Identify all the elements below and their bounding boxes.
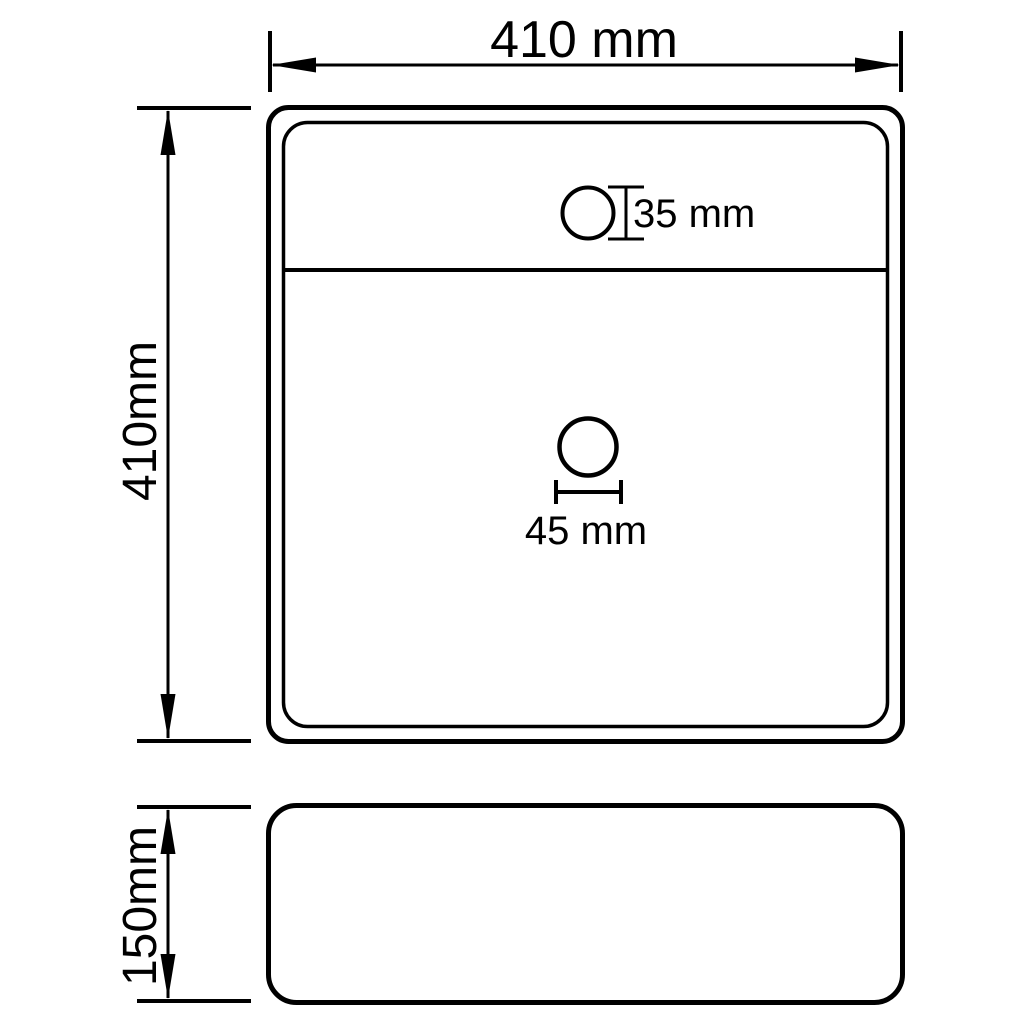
faucet-hole-circle bbox=[563, 188, 614, 239]
top-view-outer-outline bbox=[269, 108, 903, 742]
diagram-canvas: 35 mm 45 mm 410 mm 410mm 150mm bbox=[0, 0, 1024, 1024]
depth-dimension-up-arrow bbox=[161, 110, 176, 155]
depth-dimension-down-arrow bbox=[161, 694, 176, 739]
width-dimension-left-arrow bbox=[271, 58, 316, 73]
top-view-inner-rim bbox=[284, 123, 888, 727]
width-dimension-right-arrow bbox=[855, 58, 900, 73]
height-dimension-label: 150mm bbox=[114, 826, 167, 986]
side-view-outline bbox=[269, 806, 903, 1003]
drain-hole-circle bbox=[560, 419, 617, 476]
depth-dimension-label: 410mm bbox=[114, 341, 167, 501]
width-dimension-label: 410 mm bbox=[490, 11, 678, 69]
washbasin-dimension-diagram: 35 mm 45 mm 410 mm 410mm 150mm bbox=[0, 0, 1024, 1024]
faucet-hole-dimension-label: 35 mm bbox=[633, 192, 755, 236]
drain-hole-dimension-label: 45 mm bbox=[525, 509, 647, 553]
